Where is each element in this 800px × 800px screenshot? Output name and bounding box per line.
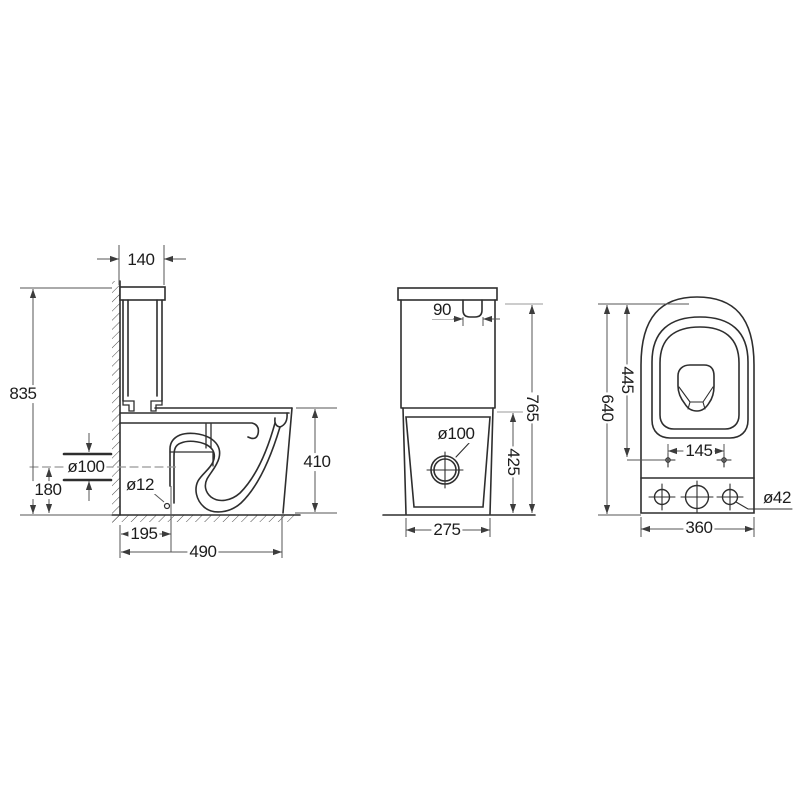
dim-base-width: 275	[431, 521, 462, 539]
dim-fixing-hole: ø12	[124, 476, 156, 494]
fixing-hole	[165, 504, 170, 509]
tank-lid	[120, 287, 165, 300]
tank-feet	[123, 401, 162, 411]
tank-lid-front	[398, 288, 497, 300]
tank-walls	[123, 300, 162, 401]
dim-button-width: 90	[431, 301, 453, 319]
dim-rim-height: 425	[504, 446, 522, 477]
dim-drain-diameter: ø100	[435, 425, 476, 443]
front-view	[383, 288, 535, 515]
dim-outlet-diameter: ø100	[65, 458, 106, 476]
technical-drawing: 140 835 ø100 180 ø12 195 490 410 90 765 …	[0, 0, 800, 800]
dim-plan-depth: 640	[598, 392, 616, 423]
bowl-trap-inner	[170, 423, 275, 500]
rim-hook	[275, 413, 287, 427]
dim-overall-depth: 490	[187, 543, 218, 561]
side-view-dimensions	[20, 245, 337, 558]
dim-hole-diameter: ø42	[761, 489, 793, 507]
drawing-linework	[0, 0, 800, 800]
dim-plan-width: 360	[683, 519, 714, 537]
drain-leader	[456, 441, 471, 457]
ext-lines	[20, 245, 337, 558]
dim-overall-height: 835	[7, 385, 38, 403]
drain-crosshair	[427, 452, 463, 488]
side-view	[30, 281, 300, 523]
dim-tank-top-height: 765	[523, 392, 541, 423]
dim-bolt-setback: 445	[618, 364, 636, 395]
dim-tank-width: 140	[125, 251, 156, 269]
top-view	[641, 297, 792, 513]
dim-outlet-setback: 195	[128, 525, 159, 543]
flush-button	[463, 300, 482, 317]
dim-bowl-height: 410	[301, 453, 332, 471]
dim-outlet-height: 180	[32, 481, 63, 499]
flush-shelf	[170, 424, 213, 466]
dim-bolt-spacing: 145	[683, 442, 714, 460]
